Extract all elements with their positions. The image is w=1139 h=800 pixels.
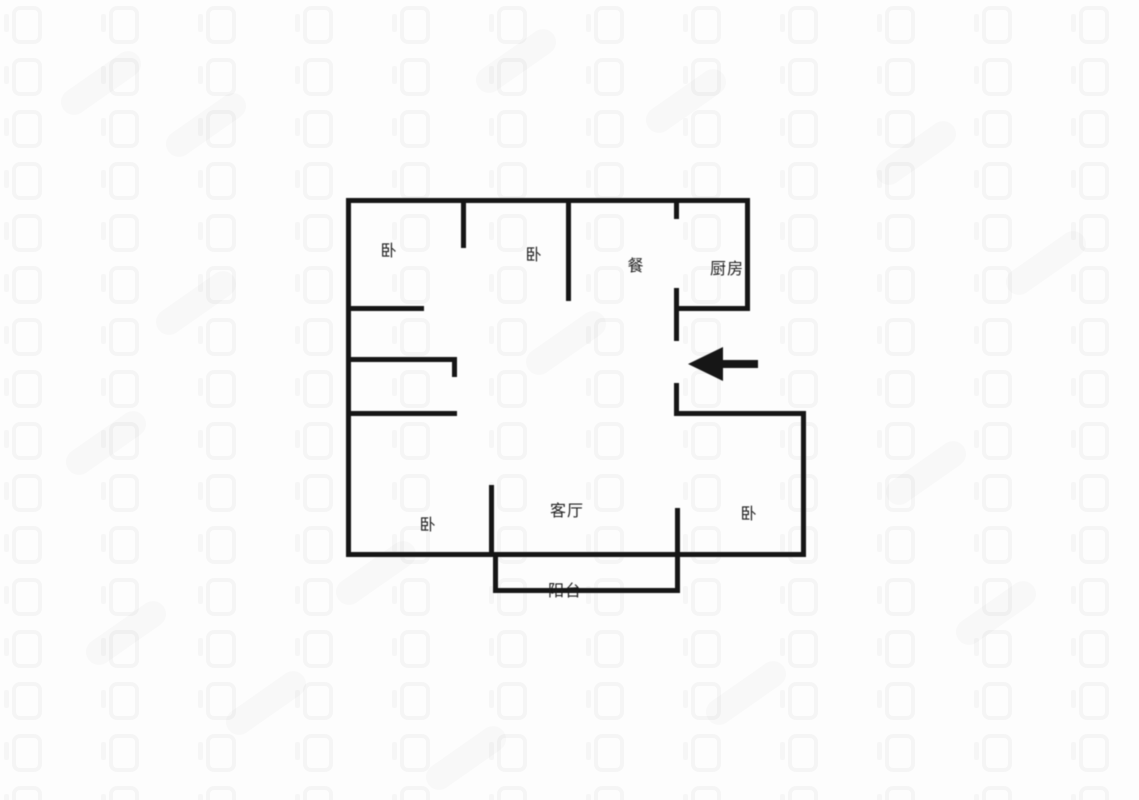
wall-outer-top (346, 198, 750, 203)
floor-plan: 卧卧餐厨房卧客厅卧阳台 (0, 0, 1139, 800)
wall-living-bed4-partition (675, 508, 680, 593)
wall-bedroom-4-top (674, 411, 806, 416)
entrance-arrow-icon (0, 0, 1139, 800)
room-label-bedroom-2: 卧 (525, 241, 542, 265)
wall-bed1-bed2-partition (461, 198, 466, 248)
wall-kitchen-left-stub (674, 198, 679, 219)
room-label-balcony: 阳台 (548, 577, 582, 601)
room-label-dining: 餐 (627, 252, 644, 276)
room-label-bedroom-4: 卧 (740, 500, 757, 524)
wall-bed3-living-partition (489, 485, 494, 557)
wall-outer-left (346, 198, 351, 557)
room-label-bedroom-1: 卧 (380, 237, 397, 261)
wall-hall-lower (346, 411, 457, 416)
room-label-bedroom-3: 卧 (419, 511, 436, 535)
wall-hall-stub (452, 357, 457, 377)
floor-plan-image: 卧卧餐厨房卧客厅卧阳台 (0, 0, 1139, 800)
room-label-living-room: 客厅 (550, 497, 584, 521)
wall-outer-right-upper (745, 198, 750, 311)
wall-entry-side (674, 383, 679, 416)
wall-bed2-dining-partition (566, 198, 571, 301)
wall-outer-right-lower (801, 411, 806, 557)
room-label-kitchen: 厨房 (710, 255, 744, 279)
wall-kitchen-left-mid (674, 288, 679, 341)
wall-kitchen-bottom (674, 306, 750, 311)
wall-outer-bottom (346, 552, 806, 557)
wall-balcony-bottom (493, 588, 679, 593)
wall-hall-upper (346, 357, 457, 362)
wall-bed1-bottom (346, 306, 424, 311)
wall-balcony-left (493, 552, 498, 593)
